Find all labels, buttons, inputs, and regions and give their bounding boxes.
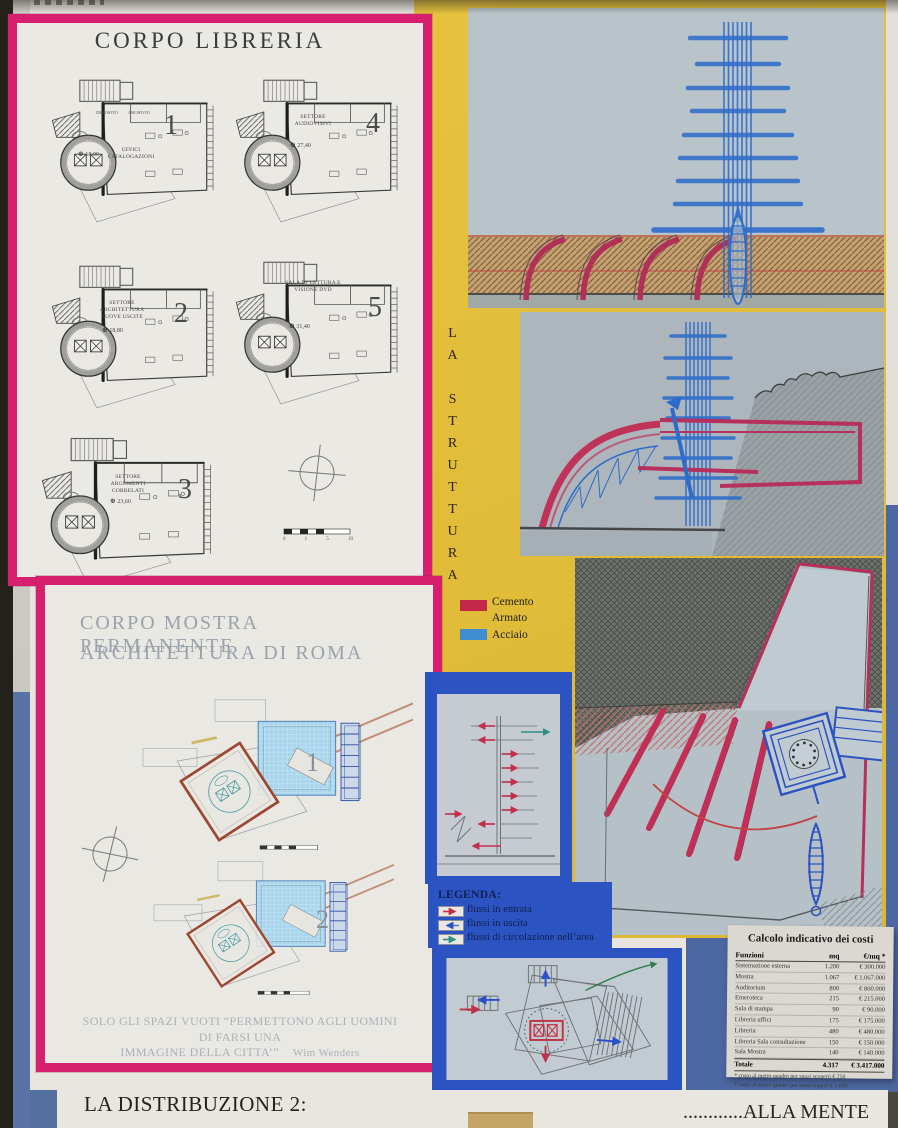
structure-section-sketch-top: [468, 8, 884, 308]
plan4-number: 4: [366, 108, 380, 140]
plan5-number: 5: [368, 292, 382, 324]
cemento-armato-swatch-icon: [460, 600, 487, 611]
libreria-panel-title: CORPO LIBRERIA: [60, 28, 360, 54]
plan5-label: SALA DI LETTURA E VISIONE DVD: [283, 280, 343, 294]
wall-right-upper: [886, 0, 898, 505]
plan4-label: SETTORE AUDIOVISIVI: [283, 114, 343, 128]
cost-table-total-row: Totale 4.317 € 3.417.000: [734, 1058, 884, 1073]
legenda-item-uscita: flussi in uscita: [467, 918, 528, 929]
structure-section-sketch-middle: [520, 312, 884, 556]
legenda-item-circolazione: flussi di circolazione nell’area: [467, 932, 594, 943]
north-arrow-icon: [78, 822, 142, 886]
plan1-label: UFFICI CATALOGAZIONI: [100, 147, 162, 161]
poster-photo: LA STRUTTURA Cemento Armato Acciaio CORP…: [0, 0, 898, 1128]
alla-mente-caption: ............ALLA MENTE: [683, 1101, 869, 1124]
plan1-room-archivio: ARCHIVIO: [121, 110, 157, 115]
plan1-number: 1: [164, 110, 178, 142]
entrata-arrow-icon: [438, 906, 464, 917]
mostra-plan-2-drawing: [138, 860, 394, 1004]
level-marker-icon: ⊕: [78, 150, 84, 158]
scale-bar: [283, 528, 353, 536]
structure-section-title: LA STRUTTURA: [444, 326, 460, 572]
circolazione-arrow-icon: [438, 934, 464, 945]
plan2-number: 2: [174, 298, 188, 330]
floor-plan-4-drawing: [232, 76, 412, 224]
quote-author: Wim Wenders: [293, 1047, 360, 1059]
structure-detail-sketch-bottom: [575, 558, 882, 935]
cost-footnote: * costo al metro quadro per spazi scoper…: [734, 1072, 884, 1082]
photo-shadow-overlay: [0, 0, 898, 14]
mostra-panel-title-line2: ARCHITETTURA DI ROMA: [80, 642, 410, 665]
level-marker-icon: ⊕: [290, 141, 296, 149]
plan1-area: ⊕ 18,00: [78, 150, 99, 158]
north-arrow-icon: [287, 443, 347, 503]
plan3-label: SETTORE ARGOMENTI CORRELATI: [98, 474, 158, 495]
cost-table-title: Calcolo indicativo dei costi: [736, 932, 886, 946]
plan4-area: ⊕ 27,40: [290, 141, 311, 149]
plan3-number: 3: [178, 474, 192, 506]
plan5-area: ⊕ 31,40: [289, 322, 310, 330]
tape-piece: [468, 1112, 533, 1128]
level-marker-icon: ⊕: [110, 497, 116, 505]
plan3-area: ⊕ 23,60: [110, 497, 131, 505]
acciaio-swatch-icon: [460, 629, 487, 640]
mostra-plan-1-number: 1: [306, 748, 319, 778]
scale-bar-ticks: 0 1 5 10: [283, 537, 353, 542]
flow-section-sketch: [437, 694, 560, 876]
legenda-item-entrata: flussi in entrata: [467, 904, 532, 915]
uscita-arrow-icon: [438, 920, 464, 931]
floor-plan-2-drawing: [48, 262, 228, 410]
wenders-quote: SOLO GLI SPAZI VUOTI “PERMETTONO AGLI UO…: [80, 1014, 400, 1061]
level-marker-icon: ⊕: [289, 322, 295, 330]
floor-plan-3-drawing: [38, 434, 226, 589]
cemento-armato-label: Cemento Armato: [492, 594, 558, 626]
distribuzione-caption: LA DISTRIBUZIONE 2:: [84, 1092, 307, 1117]
wall-blue-bottom-left: [30, 1090, 57, 1128]
acciaio-label: Acciaio: [492, 627, 558, 643]
mostra-plan-2-number: 2: [316, 905, 329, 935]
mostra-plan-1-drawing: [125, 698, 413, 860]
cost-table: Calcolo indicativo dei costi Funzioni mq…: [726, 925, 894, 1079]
plan1-room-deposito: DEPOSITO: [89, 110, 125, 115]
level-marker-icon: ⊕: [102, 326, 108, 334]
legenda-title: LEGENDA:: [438, 889, 501, 901]
flow-plan-sketch: [444, 958, 670, 1080]
plan2-area: ⊕ 18,80: [102, 326, 123, 334]
wall-shadow-right: [888, 1092, 898, 1128]
plan2-label: SETTORE ARCHITETTURA NUOVE USCITE: [92, 300, 152, 321]
